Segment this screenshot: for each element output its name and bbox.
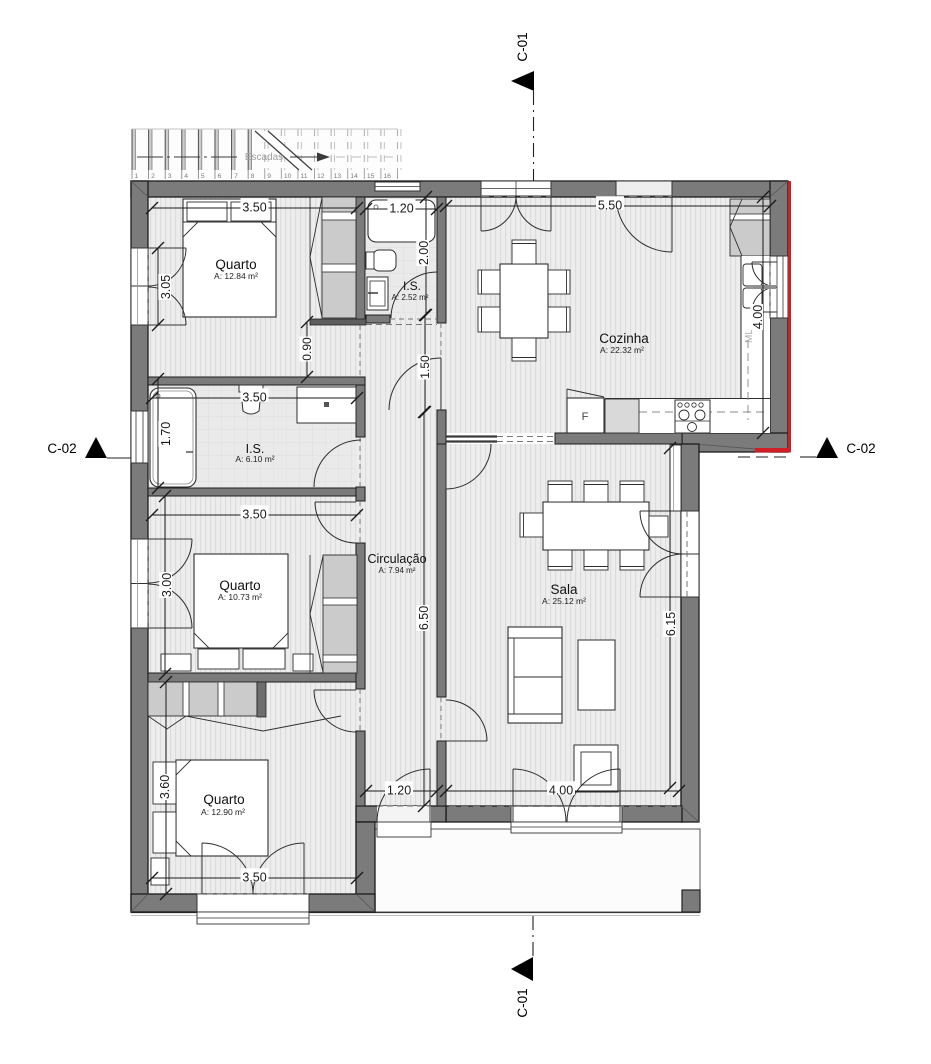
svg-text:3.50: 3.50 (242, 871, 266, 885)
svg-text:Circulação: Circulação (367, 552, 426, 566)
svg-text:Escadas: Escadas (245, 152, 283, 163)
svg-text:1.70: 1.70 (159, 422, 173, 446)
svg-text:13: 13 (334, 173, 342, 180)
svg-text:C-02: C-02 (47, 441, 76, 456)
svg-text:9: 9 (267, 173, 271, 180)
svg-text:0.90: 0.90 (300, 337, 314, 361)
svg-text:Quarto: Quarto (215, 257, 256, 272)
svg-text:3.50: 3.50 (242, 391, 266, 405)
svg-text:12: 12 (317, 173, 325, 180)
svg-text:1.20: 1.20 (387, 784, 411, 798)
svg-text:ML: ML (744, 329, 755, 343)
svg-text:3: 3 (168, 173, 172, 180)
svg-text:6.15: 6.15 (664, 612, 678, 636)
svg-text:Quarto: Quarto (219, 578, 260, 593)
svg-text:14: 14 (350, 173, 358, 180)
svg-text:2.00: 2.00 (417, 241, 431, 265)
svg-text:11: 11 (300, 173, 307, 180)
svg-text:A: 12.90 m²: A: 12.90 m² (201, 807, 245, 817)
svg-text:Sala: Sala (550, 582, 578, 597)
svg-text:7: 7 (234, 173, 238, 180)
svg-text:6: 6 (217, 173, 221, 180)
svg-text:5.50: 5.50 (598, 199, 622, 213)
svg-text:A: 2.52 m²: A: 2.52 m² (392, 293, 429, 302)
svg-text:5: 5 (201, 173, 205, 180)
svg-text:F: F (582, 411, 589, 423)
svg-text:A: 6.10 m²: A: 6.10 m² (235, 454, 274, 464)
svg-text:10: 10 (284, 173, 292, 180)
svg-text:3.50: 3.50 (242, 201, 266, 215)
svg-text:3.60: 3.60 (158, 775, 172, 799)
svg-text:A: 12.84 m²: A: 12.84 m² (214, 271, 258, 281)
svg-text:2: 2 (151, 173, 155, 180)
svg-text:I.S.: I.S. (403, 279, 421, 293)
svg-text:1: 1 (135, 173, 139, 180)
svg-text:15: 15 (367, 173, 375, 180)
svg-text:1.20: 1.20 (389, 202, 413, 216)
svg-text:A: 25.12 m²: A: 25.12 m² (542, 596, 586, 606)
svg-text:4.00: 4.00 (751, 305, 765, 329)
svg-text:3.50: 3.50 (242, 508, 266, 522)
svg-text:8: 8 (251, 173, 255, 180)
svg-text:A: 7.94 m²: A: 7.94 m² (379, 566, 416, 575)
svg-text:6.50: 6.50 (417, 606, 431, 630)
svg-text:C-01: C-01 (515, 988, 530, 1017)
svg-text:Cozinha: Cozinha (599, 331, 649, 346)
svg-text:C-02: C-02 (846, 441, 875, 456)
svg-text:C-01: C-01 (515, 32, 530, 61)
svg-text:3.05: 3.05 (159, 275, 173, 299)
svg-text:16: 16 (383, 173, 391, 180)
svg-text:A: 22.32 m²: A: 22.32 m² (600, 345, 644, 355)
svg-text:4: 4 (184, 173, 188, 180)
svg-text:4.00: 4.00 (549, 784, 573, 798)
svg-text:Quarto: Quarto (203, 792, 244, 807)
svg-text:3.00: 3.00 (160, 573, 174, 597)
svg-text:A: 10.73 m²: A: 10.73 m² (218, 592, 262, 602)
svg-text:1.50: 1.50 (418, 355, 432, 379)
